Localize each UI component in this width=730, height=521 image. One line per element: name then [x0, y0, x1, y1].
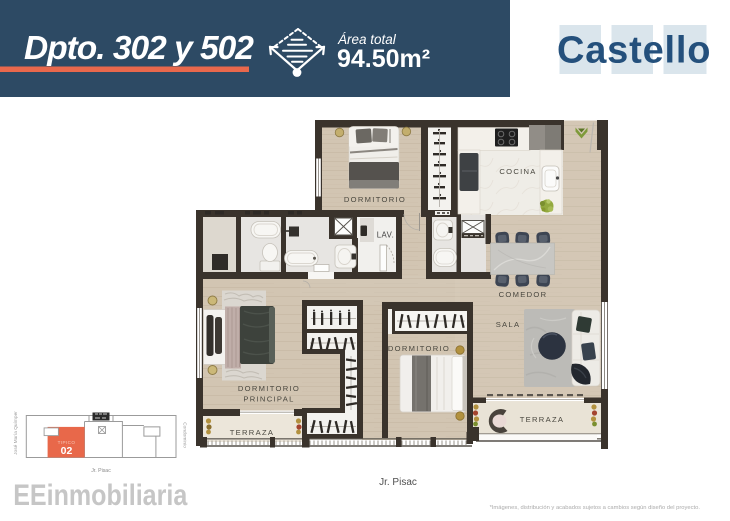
svg-text:José María Químper: José María Químper — [13, 411, 19, 455]
svg-text:94.50m²: 94.50m² — [337, 45, 430, 73]
svg-text:DORMITORIO: DORMITORIO — [388, 344, 450, 353]
svg-text:COMEDOR: COMEDOR — [499, 290, 548, 299]
svg-text:EEinmobiliaria: EEinmobiliaria — [13, 478, 188, 511]
svg-text:Jr. Pisac: Jr. Pisac — [91, 468, 111, 474]
svg-text:TERRAZA: TERRAZA — [520, 415, 565, 424]
svg-text:Condominio: Condominio — [182, 422, 188, 448]
svg-text:LAV.: LAV. — [377, 231, 395, 240]
svg-text:SALA: SALA — [496, 320, 521, 329]
svg-text:Dpto. 302 y 502: Dpto. 302 y 502 — [24, 30, 254, 67]
svg-text:TERRAZA: TERRAZA — [230, 428, 275, 437]
svg-text:DORMITORIO: DORMITORIO — [238, 384, 300, 393]
svg-text:Jr. Pisac: Jr. Pisac — [379, 477, 417, 488]
svg-text:COCINA: COCINA — [499, 167, 536, 176]
svg-text:DORMITORIO: DORMITORIO — [344, 195, 406, 204]
svg-text:PRINCIPAL: PRINCIPAL — [243, 395, 294, 404]
svg-text:Castello: Castello — [557, 30, 711, 72]
svg-text:02: 02 — [61, 445, 73, 457]
svg-text:*Imágenes, distribución y acab: *Imágenes, distribución y acabados sujet… — [490, 505, 701, 511]
